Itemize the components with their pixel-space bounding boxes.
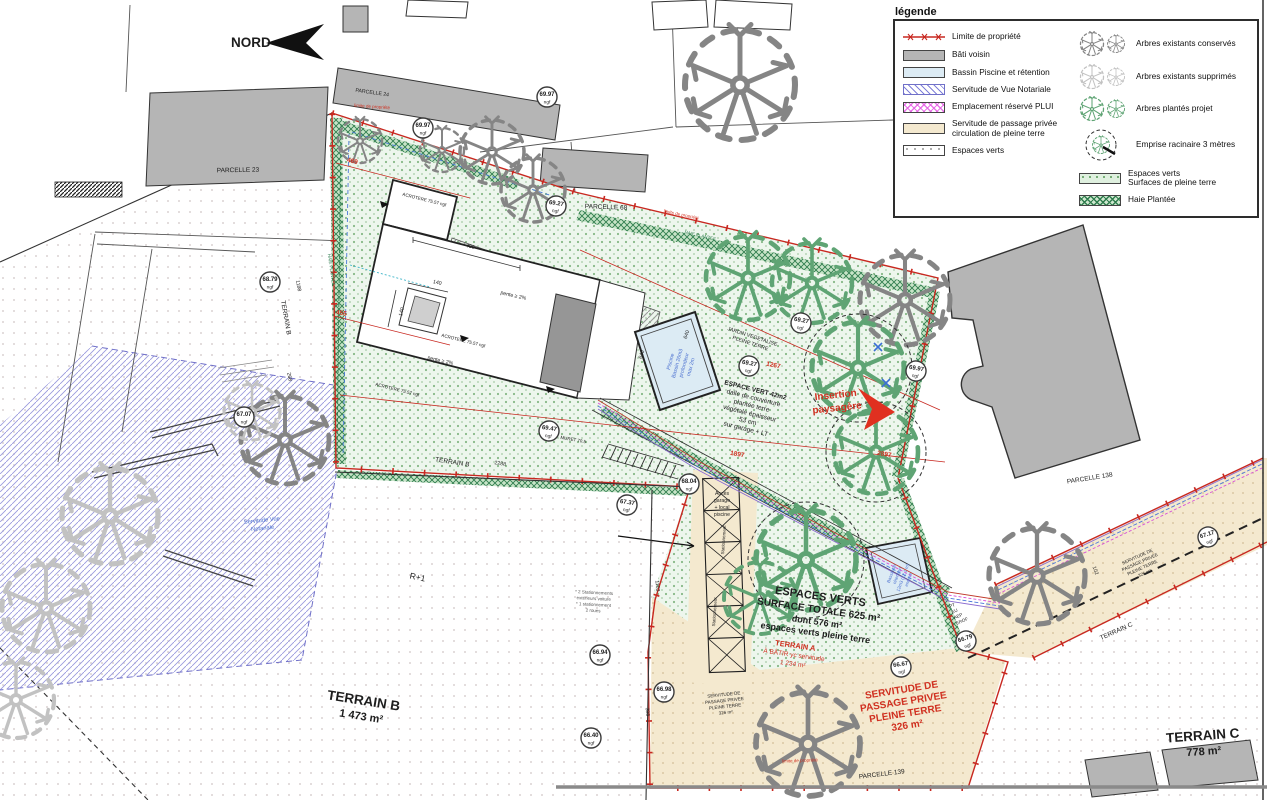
emprise-racinaire-icon: [1079, 128, 1129, 162]
bassin-swatch-icon: [903, 67, 945, 78]
acces-block: Accès garage + local piscine: [714, 491, 730, 518]
elevation-value: 66.98: [656, 687, 672, 693]
acces-line2: garage: [714, 498, 730, 504]
legend-item-haie: Haie Plantée: [1079, 195, 1253, 206]
legend-item-vue: Servitude de Vue Notariale: [903, 84, 1075, 95]
legend-label: Servitude de passage privée circulation …: [952, 119, 1057, 139]
legend-label: Arbres existants supprimés: [1136, 72, 1236, 82]
elevation-unit: ngf: [267, 285, 274, 291]
haie-swatch-icon: [1079, 195, 1121, 206]
trees-existing-icon: [1079, 31, 1129, 57]
bati-swatch-icon: [903, 50, 945, 61]
acces-line1: Accès: [715, 491, 730, 497]
legend-item-plui: Emplacement réservé PLUI: [903, 102, 1075, 113]
elevation-value: 68.04: [681, 479, 697, 485]
legend-item-verts: Espaces verts: [903, 145, 1075, 156]
pn-line4: 2 roues: [586, 608, 602, 614]
elevation-value: 69.97: [415, 123, 431, 129]
trees-planted-icon: [1079, 96, 1129, 122]
legend-label: Arbres existants conservés: [1136, 39, 1236, 49]
parcelle-23-label: PARCELLE 23: [217, 167, 260, 175]
legend-label: Limite de propriété: [952, 32, 1021, 42]
legend-label: Emplacement réservé PLUI: [952, 102, 1053, 112]
elevation-value: 66.40: [583, 733, 599, 739]
elevation-value: 69.97: [539, 92, 555, 98]
plui-swatch-icon: [903, 102, 945, 113]
legend-item-arbres-conserves: Arbres existants conservés: [1079, 31, 1253, 57]
legend-item-emprise: Emprise racinaire 3 mètres: [1079, 128, 1253, 162]
vue-swatch-icon: [903, 84, 945, 95]
elevation-value: 66.94: [592, 650, 608, 656]
elevation-unit: ngf: [241, 420, 248, 426]
legend-item-bassin: Bassin Piscine et rétention: [903, 67, 1075, 78]
limite-swatch-icon: [903, 31, 945, 43]
elevation-unit: ngf: [588, 741, 595, 747]
legend-label: Espaces verts: [952, 146, 1004, 156]
elevation-unit: ngf: [597, 658, 604, 664]
legend-label: Emprise racinaire 3 mètres: [1136, 140, 1235, 150]
elevation-value: 68.79: [262, 277, 278, 283]
legend-label: Bâti voisin: [952, 50, 990, 60]
legend-label: Servitude de Vue Notariale: [952, 85, 1051, 95]
parcelle-68-label: PARCELLE 68: [585, 203, 628, 211]
legend-item-limite: Limite de propriété: [903, 31, 1075, 43]
legend-item-passage: Servitude de passage privée circulation …: [903, 119, 1075, 139]
legend-label: Bassin Piscine et rétention: [952, 68, 1050, 78]
legend-item-arbres-supprimes: Arbres existants supprimés: [1079, 64, 1253, 90]
elevation-unit: ngf: [686, 487, 693, 493]
north-label: NORD: [231, 35, 271, 50]
site-plan-page: NORD 69.97ngf 69.97ngf 69.27ngf 69.27ngf…: [0, 0, 1267, 800]
legend-box: Limite de propriété Bâti voisin Bassin P…: [893, 19, 1259, 218]
acces-line3: + local: [714, 505, 729, 511]
elevation-unit: ngf: [661, 695, 668, 701]
trees-removed-icon: [1079, 64, 1129, 90]
legend: légende Limite de propriété Bâti voisin …: [893, 6, 1259, 218]
elevation-unit: ngf: [544, 100, 551, 106]
espaces-verts-swatch-icon: [903, 145, 945, 156]
elevation-unit: ngf: [420, 131, 427, 137]
elevation-value: 67.07: [236, 412, 252, 418]
legend-label: Arbres plantés projet: [1136, 104, 1213, 114]
legend-item-verts-pleine-terre: Espaces verts Surfaces de pleine terre: [1079, 169, 1253, 189]
building-bottom-right-1: [1085, 752, 1158, 797]
legend-label: Haie Plantée: [1128, 195, 1176, 205]
legend-label: Espaces verts Surfaces de pleine terre: [1128, 169, 1216, 189]
dim-1103: 1103: [654, 580, 661, 592]
legend-item-bati: Bâti voisin: [903, 50, 1075, 61]
legend-item-arbres-plantes: Arbres plantés projet: [1079, 96, 1253, 122]
terrain-c-area: 778 m²: [1186, 745, 1222, 759]
legend-right-column: Arbres existants conservés Arbres exista…: [1079, 28, 1253, 209]
road-strip: [55, 182, 122, 197]
legend-title: légende: [895, 6, 1259, 18]
verts-pleine-terre-swatch-icon: [1079, 173, 1121, 184]
passage-swatch-icon: [903, 123, 945, 134]
acces-line4: piscine: [714, 512, 730, 518]
dim-398: 398: [644, 707, 651, 716]
legend-left-column: Limite de propriété Bâti voisin Bassin P…: [903, 28, 1075, 209]
